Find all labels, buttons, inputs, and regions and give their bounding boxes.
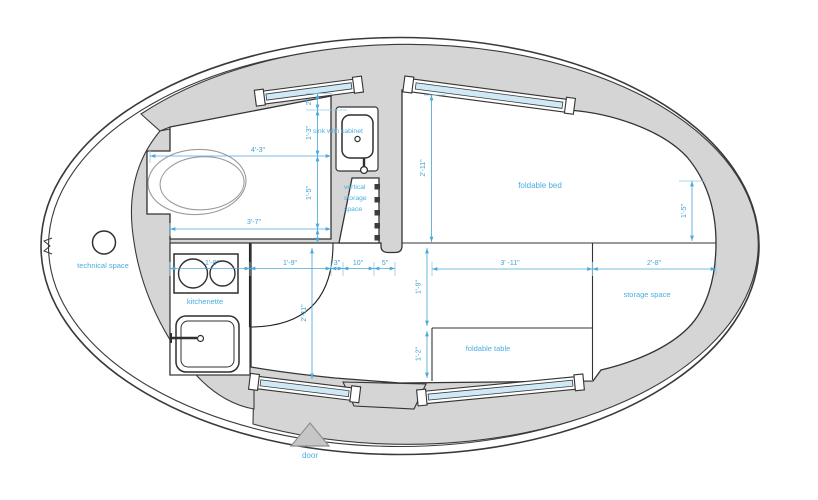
- dim-bath-width-bottom-text: 3'-7": [247, 219, 261, 226]
- dim-gap3-text: 3": [334, 260, 341, 267]
- window-cap: [352, 76, 363, 93]
- dim-table-offset-text: 1'-9": [416, 280, 423, 294]
- dim-sink-depth-text: 1'-3": [306, 126, 313, 140]
- floor-plan-svg: 2" 1'-3" 1'-5" 4'-3" 3'-7" 2'-11" 1'-5" …: [0, 0, 818, 500]
- label-foldable-bed: foldable bed: [518, 181, 562, 190]
- label-vertical-storage-2: storage: [344, 195, 367, 202]
- window-cap: [249, 373, 260, 390]
- window-cap: [574, 374, 584, 391]
- dim-bath-width-top-text: 4'-3": [251, 147, 265, 154]
- dim-gap5-text: 5": [382, 260, 389, 267]
- floor-plan-page: 2" 1'-3" 1'-5" 4'-3" 3'-7" 2'-11" 1'-5" …: [0, 0, 818, 500]
- dim-bed-side-text: 1'-5": [681, 204, 688, 218]
- label-vertical-storage-3: space: [344, 206, 362, 213]
- window-cap: [350, 386, 361, 403]
- label-foldable-table: foldable table: [466, 344, 511, 353]
- kitchen-faucet-knob: [198, 336, 204, 342]
- dim-table-width-text: 3' -11": [500, 260, 520, 267]
- label-technical-space: technical space: [77, 261, 129, 270]
- dim-storage-width-text: 2'-8": [647, 260, 661, 267]
- dim-bath-mid-text: 1'-5": [306, 186, 313, 200]
- dim-kitchen-width-text: 1'-8": [205, 260, 219, 267]
- label-storage-space: storage space: [623, 290, 670, 299]
- technical-circle: [93, 231, 116, 254]
- dim-bed-depth-text: 2'-11": [420, 159, 427, 177]
- ladder-rung: [375, 210, 381, 216]
- ladder-rung: [375, 235, 381, 241]
- window-cap: [417, 389, 427, 406]
- ladder-rung: [375, 197, 381, 203]
- faucet-knob: [361, 167, 368, 174]
- window-cap: [403, 76, 414, 93]
- label-vertical-storage-1: vertical: [344, 184, 366, 191]
- dim-table-depth-text: 1'-2": [416, 347, 423, 361]
- label-sink-cabinet: sink with cabinet: [313, 128, 363, 135]
- kitchen-sink: [176, 316, 239, 372]
- label-kitchenette: kitchenette: [187, 297, 223, 306]
- dim-gap10-text: 10": [353, 260, 364, 267]
- label-door: door: [302, 451, 318, 460]
- window-cap: [254, 89, 265, 106]
- dim-room-depth-text: 2'-11": [301, 304, 308, 322]
- window-cap: [564, 97, 575, 114]
- dim-door-width-text: 1'-9": [283, 260, 297, 267]
- ladder-rung: [375, 223, 381, 229]
- dim-top-small-text: 2": [306, 98, 313, 105]
- ladder-rung: [375, 184, 381, 190]
